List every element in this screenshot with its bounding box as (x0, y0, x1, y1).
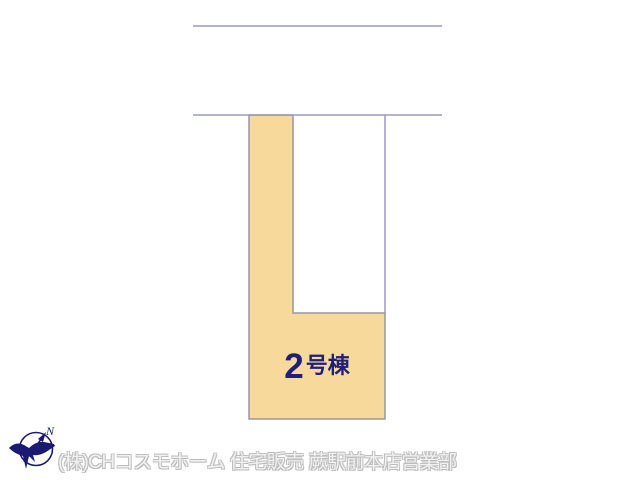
site-plan-drawing (0, 0, 640, 480)
compass-north-icon: N (8, 421, 64, 479)
site-plan-canvas: 2 号棟 N (株)CHコスモホーム 住宅販売 蕨駅前本店営業部 (0, 0, 640, 480)
compass-north-label: N (45, 424, 55, 438)
company-watermark: (株)CHコスモホーム 住宅販売 蕨駅前本店営業部 (58, 447, 457, 474)
lot-2-shape (249, 115, 385, 419)
